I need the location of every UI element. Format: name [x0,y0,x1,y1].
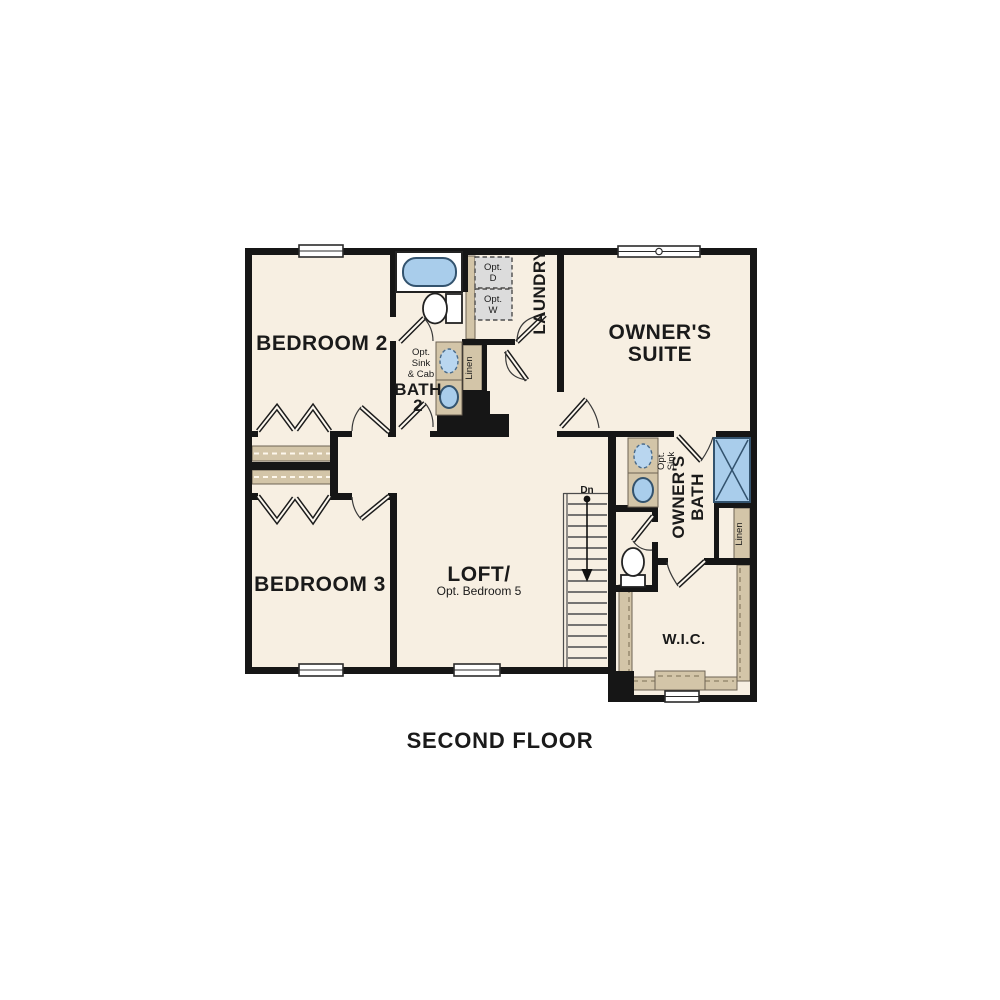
window-loft [454,664,500,676]
opt-washer-label-line1: Opt. [484,294,502,305]
opt-dryer-label-line2: D [490,273,497,284]
laundry-label: LAUNDRY [530,249,549,335]
bath2-label-line2: 2 [413,396,423,415]
opt-washer-label-line2: W [489,305,498,316]
window-owners-suite [618,246,700,257]
toilet-icon-bath2 [423,294,462,324]
bedroom3-label: BEDROOM 3 [254,573,386,596]
page-title: SECOND FLOOR [407,728,594,753]
floor-plan-page: BEDROOM 2 BEDROOM 3 OWNER'S SUITE LOFT/ … [0,0,1000,1000]
linen-hall-label: Linen [464,356,475,379]
bedroom2-label: BEDROOM 2 [256,332,388,355]
opt-sink-cab-label-line3: & Cab [408,369,434,380]
opt-dryer-label-line1: Opt. [484,262,502,273]
sink-icon [440,386,458,408]
sink-icon [633,478,653,502]
stairs-dn-label: Dn [580,485,593,496]
window-wic [665,691,699,702]
optional-sink-icon [634,444,652,468]
bathtub-icon [396,252,462,292]
owners-suite-label-line1: OWNER'S [609,321,712,344]
optional-sink-icon [440,349,458,373]
owners-suite-label-line2: SUITE [628,343,692,366]
window-bedroom2 [299,245,343,257]
loft-label: LOFT/ [447,563,510,586]
floor-plan-svg: BEDROOM 2 BEDROOM 3 OWNER'S SUITE LOFT/ … [0,0,1000,1000]
owners-bath-label-line2: BATH [688,473,707,521]
opt-sink-label-line2: Sink [666,452,677,471]
linen-owners-label: Linen [734,522,745,545]
vanity-owners-bath [628,438,658,507]
toilet-icon-owners [621,548,645,587]
shower-icon [714,438,750,502]
vanity-bath2 [436,342,462,415]
opt-sink-cab-label-line2: Sink [412,358,431,369]
window-bedroom3 [299,664,343,676]
opt-sink-cab-label-line1: Opt. [412,347,430,358]
loft-sublabel: Opt. Bedroom 5 [437,584,522,598]
wic-label: W.I.C. [662,631,705,648]
